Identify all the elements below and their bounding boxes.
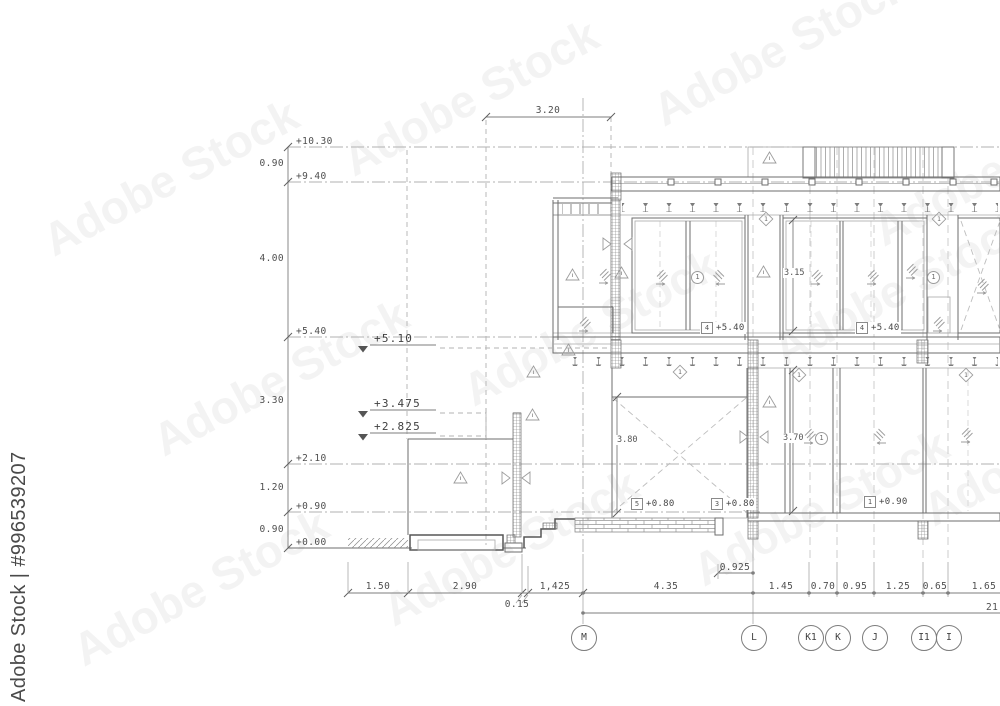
top-dimension-label: 3.20 bbox=[528, 105, 568, 116]
lower-floor bbox=[612, 366, 1000, 539]
diamond-reference: 1 bbox=[792, 368, 806, 382]
level-label: +0.90 bbox=[296, 501, 327, 512]
bottom-dimension: 4.35 bbox=[646, 581, 686, 592]
tag-number: 4 bbox=[701, 322, 713, 334]
circle-reference: 1 bbox=[691, 271, 704, 284]
bottom-dimension: 1.45 bbox=[761, 581, 801, 592]
bottom-dimension-chain bbox=[344, 522, 1000, 624]
segment-dimension: 0.90 bbox=[252, 158, 284, 169]
architectural-section-drawing: Adobe Stock Adobe Stock Adobe Stock Adob… bbox=[0, 0, 1000, 706]
level-marker-label: +2.825 bbox=[374, 420, 421, 433]
floor-level-tag: 3 +0.80 bbox=[710, 498, 756, 510]
floor-level-tag: 4 +5.40 bbox=[700, 322, 746, 334]
grid-bubble-i: I bbox=[936, 625, 962, 651]
window-height-dimension: 3.15 bbox=[783, 268, 805, 278]
grid-bubble-k: K bbox=[825, 625, 851, 651]
opening-height-dimension: 3.80 bbox=[616, 435, 638, 445]
grid-bubble-j: J bbox=[862, 625, 888, 651]
level-marker-label: +3.475 bbox=[374, 397, 421, 410]
window-height-dimension: 3.70 bbox=[782, 433, 804, 443]
tag-number: 5 bbox=[631, 498, 643, 510]
diamond-reference: 1 bbox=[932, 212, 946, 226]
slab-arrow-rows bbox=[560, 203, 998, 366]
grid-bubble-l: L bbox=[741, 625, 767, 651]
left-dimension-axis bbox=[284, 143, 292, 552]
segment-dimension: 4.00 bbox=[252, 253, 284, 264]
grid-bubble-k1: K1 bbox=[798, 625, 824, 651]
diamond-reference: 1 bbox=[959, 368, 973, 382]
bottom-dimension: 0.65 bbox=[915, 581, 955, 592]
ground-works bbox=[348, 413, 723, 552]
diamond-reference: 1 bbox=[673, 365, 687, 379]
bottom-dimension: 1.50 bbox=[358, 581, 398, 592]
tag-value: +0.90 bbox=[879, 497, 908, 507]
grid-bubble-m: M bbox=[571, 625, 597, 651]
floor-level-tag: 4 +5.40 bbox=[855, 322, 901, 334]
floor-level-tag: 1 +0.90 bbox=[863, 496, 909, 508]
segment-dimension: 0.90 bbox=[252, 524, 284, 535]
bottom-dimension: 0.95 bbox=[835, 581, 875, 592]
tag-value: +0.80 bbox=[646, 499, 675, 509]
tag-number: 4 bbox=[856, 322, 868, 334]
tag-value: +5.40 bbox=[716, 323, 745, 333]
tag-value: +0.80 bbox=[726, 499, 755, 509]
tag-number: 3 bbox=[711, 498, 723, 510]
circle-reference: 1 bbox=[815, 432, 828, 445]
bottom-dimension: 1,425 bbox=[535, 581, 575, 592]
grid-bubble-i1: I1 bbox=[911, 625, 937, 651]
circle-reference: 1 bbox=[927, 271, 940, 284]
bottom-dimension: 1.25 bbox=[878, 581, 918, 592]
level-label: +0.00 bbox=[296, 537, 327, 548]
total-dimension: 21 bbox=[986, 602, 998, 613]
bottom-dimension: 1.65 bbox=[964, 581, 1000, 592]
offset-dimension: 0.925 bbox=[715, 562, 755, 573]
threshold-dimension: 0.15 bbox=[497, 599, 537, 610]
level-marker-label: +5.10 bbox=[374, 332, 413, 345]
level-label: +10.30 bbox=[296, 136, 333, 147]
tag-number: 1 bbox=[864, 496, 876, 508]
level-label: +9.40 bbox=[296, 171, 327, 182]
segment-dimension: 1.20 bbox=[252, 482, 284, 493]
level-label: +5.40 bbox=[296, 326, 327, 337]
floor-level-tag: 5 +0.80 bbox=[630, 498, 676, 510]
level-label: +2.10 bbox=[296, 453, 327, 464]
bottom-dimension: 2.90 bbox=[445, 581, 485, 592]
segment-dimension: 3.30 bbox=[252, 395, 284, 406]
tag-value: +5.40 bbox=[871, 323, 900, 333]
diamond-reference: 1 bbox=[759, 212, 773, 226]
